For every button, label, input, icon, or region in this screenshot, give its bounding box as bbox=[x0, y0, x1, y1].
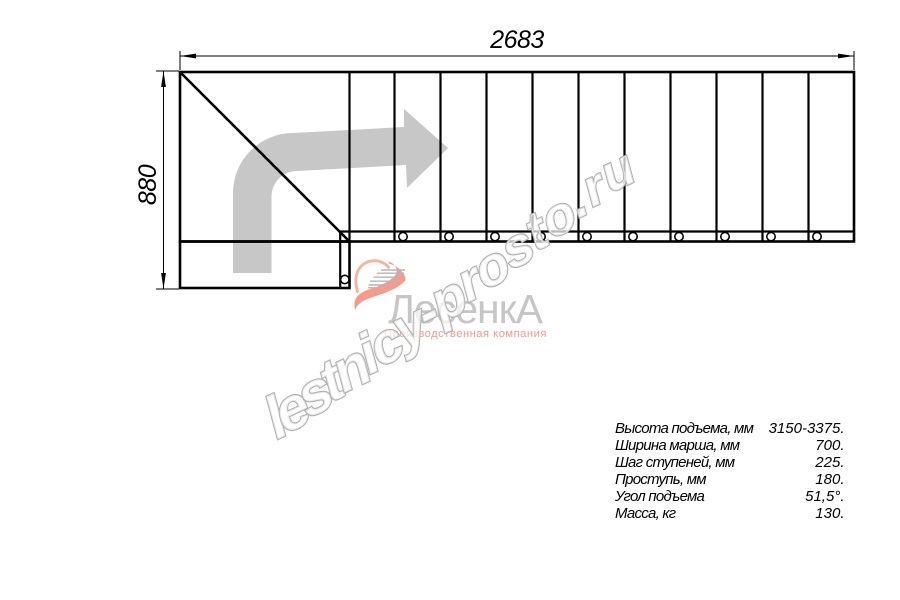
svg-text:Угол подъема: Угол подъема bbox=[614, 488, 705, 505]
svg-text:180.: 180. bbox=[815, 471, 844, 488]
svg-text:Ширина марша, мм: Ширина марша, мм bbox=[615, 437, 740, 454]
svg-text:3150-3375.: 3150-3375. bbox=[769, 420, 845, 437]
svg-text:700.: 700. bbox=[815, 437, 844, 454]
svg-text:Высота подъема, мм: Высота подъема, мм bbox=[615, 420, 754, 437]
svg-text:880: 880 bbox=[134, 164, 162, 205]
svg-text:2683: 2683 bbox=[489, 26, 544, 54]
svg-text:225.: 225. bbox=[814, 454, 844, 471]
svg-text:Шаг ступеней, мм: Шаг ступеней, мм bbox=[615, 454, 735, 471]
svg-text:130.: 130. bbox=[815, 505, 844, 522]
svg-text:Проступь, мм: Проступь, мм bbox=[615, 471, 706, 488]
svg-text:51,5°.: 51,5°. bbox=[805, 488, 844, 505]
svg-text:Масса, кг: Масса, кг bbox=[615, 505, 677, 522]
